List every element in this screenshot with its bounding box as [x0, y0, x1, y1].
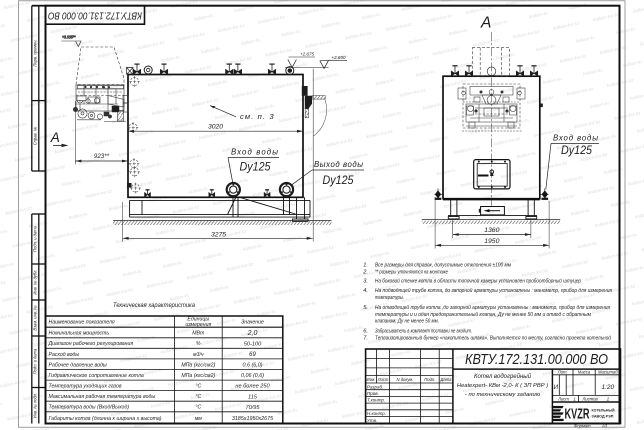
- svg-text:Перв. примен.: Перв. примен.: [33, 39, 38, 66]
- svg-text:Лист: Лист: [377, 377, 389, 382]
- svg-text:1950: 1950: [484, 238, 499, 245]
- svg-text:0,06 (0,6): 0,06 (0,6): [241, 373, 264, 379]
- svg-text:70/95: 70/95: [246, 405, 261, 411]
- svg-text:6.: 6.: [363, 329, 368, 335]
- svg-text:Выход воды: Выход воды: [314, 160, 363, 169]
- svg-text:Подп.: Подп.: [424, 377, 435, 382]
- svg-text:1360: 1360: [484, 227, 499, 234]
- svg-text:Dy125: Dy125: [240, 162, 272, 174]
- svg-text:- по техническому заданию: - по техническому заданию: [465, 392, 541, 398]
- svg-text:+2.600: +2.600: [332, 55, 347, 60]
- svg-text:Пров.: Пров.: [367, 391, 379, 396]
- svg-text:Лит.: Лит.: [557, 369, 568, 374]
- svg-text:1: 1: [573, 396, 575, 401]
- svg-text:Забрасыватель в комплект поста: Забрасыватель в комплект поставки не вхо…: [375, 329, 472, 335]
- svg-text:клапаном, Ду не менее 50 мм.: клапаном, Ду не менее 50 мм.: [375, 319, 439, 325]
- svg-text:КВТУ.172.131.00.000 ВО: КВТУ.172.131.00.000 ВО: [465, 351, 608, 368]
- svg-text:измерения: измерения: [185, 322, 211, 328]
- svg-text:Взам. инв. №: Взам. инв. №: [33, 305, 38, 331]
- svg-text:м3/ч: м3/ч: [193, 352, 204, 358]
- svg-text:5.: 5.: [363, 305, 368, 311]
- svg-text:Утв.: Утв.: [367, 418, 377, 423]
- svg-text:Dy125: Dy125: [561, 145, 593, 157]
- svg-text:температуры и и один предохран: температуры и и один предохранительный к…: [375, 311, 591, 318]
- svg-text:Техническая характеристика: Техническая характеристика: [113, 302, 196, 309]
- svg-text:А: А: [50, 130, 60, 145]
- svg-text:МПа (кгс/см2): МПа (кгс/см2): [181, 373, 215, 379]
- svg-text:И: И: [554, 384, 559, 391]
- svg-text:%: %: [196, 341, 201, 347]
- svg-text:температуры.: температуры.: [375, 295, 404, 301]
- svg-text:50-100: 50-100: [244, 341, 262, 347]
- svg-text:Инв. № подл.: Инв. № подл.: [33, 393, 38, 418]
- svg-text:°С: °С: [195, 405, 201, 411]
- svg-text:Разраб.: Разраб.: [367, 384, 383, 389]
- svg-text:923**: 923**: [94, 153, 110, 160]
- svg-text:не более 250: не более 250: [235, 384, 270, 390]
- svg-text:4.: 4.: [363, 288, 368, 294]
- svg-text:Максимальная рабочая температу: Максимальная рабочая температура воды: [49, 394, 156, 400]
- svg-text:2.: 2.: [362, 269, 368, 275]
- svg-text:А3: А3: [601, 424, 608, 429]
- svg-text:Масса: Масса: [578, 369, 591, 374]
- svg-text:+2.675: +2.675: [300, 52, 315, 57]
- svg-text:Инв. № дубл.: Инв. № дубл.: [33, 269, 38, 294]
- svg-text:KVZR: KVZR: [565, 407, 590, 423]
- svg-text:Изм.: Изм.: [367, 377, 376, 382]
- svg-text:°С: °С: [195, 394, 201, 400]
- svg-text:3020: 3020: [208, 124, 223, 131]
- svg-text:°С: °С: [195, 384, 201, 390]
- svg-text:мм: мм: [195, 416, 203, 422]
- svg-text:N докум.: N докум.: [397, 377, 414, 382]
- svg-text:Наименование показателя: Наименование показателя: [49, 320, 115, 326]
- svg-text:Значение: Значение: [241, 320, 264, 326]
- svg-text:Heatexpert- КВм -2,0- К ( ЗП Р: Heatexpert- КВм -2,0- К ( ЗП РВР ): [457, 383, 548, 389]
- svg-text:Теплоизолированный бункер «нак: Теплоизолированный бункер «накопитель шл…: [375, 335, 612, 342]
- svg-text:Диапазон рабочего регулировани: Диапазон рабочего регулирования: [48, 341, 134, 347]
- svg-text:Вход воды: Вход воды: [553, 134, 598, 143]
- svg-text:МВт: МВт: [192, 331, 205, 337]
- svg-text:см. п. 3: см. п. 3: [240, 112, 275, 121]
- svg-text:Т.контр.: Т.контр.: [367, 398, 385, 403]
- svg-text:69: 69: [249, 352, 256, 358]
- svg-text:** размеры уточняются на монта: ** размеры уточняются на монтаже: [375, 269, 448, 275]
- svg-text:3.: 3.: [363, 279, 368, 285]
- svg-text:На отводящей трубе котла ,до з: На отводящей трубе котла ,до запорной ар…: [375, 304, 610, 311]
- svg-text:Все размеры для справок, допус: Все размеры для справок, допустимые откл…: [375, 262, 511, 268]
- svg-text:Масштаб: Масштаб: [598, 369, 618, 374]
- svg-text:3185х1950х2675: 3185х1950х2675: [232, 416, 274, 422]
- svg-text:Гидравлическое сопротивление к: Гидравлическое сопротивление котла: [49, 373, 144, 379]
- svg-text:Температура уходящих газов: Температура уходящих газов: [49, 384, 122, 390]
- svg-text:Справ. №: Справ. №: [33, 126, 38, 145]
- svg-text:Н.контр.: Н.контр.: [367, 411, 386, 416]
- svg-text:Дата: Дата: [439, 377, 452, 382]
- svg-text:Лист: Лист: [557, 396, 569, 401]
- svg-text:Формат: Формат: [574, 424, 591, 429]
- svg-text:3275: 3275: [211, 232, 226, 239]
- svg-text:Рабочее давление воды: Рабочее давление воды: [49, 362, 107, 368]
- svg-text:Dy125: Dy125: [323, 175, 355, 187]
- svg-text:Расход воды: Расход воды: [49, 352, 80, 358]
- svg-text:115: 115: [248, 394, 258, 400]
- svg-text:На боковой стенке котла в обла: На боковой стенке котла в области топочн…: [375, 278, 581, 285]
- svg-text:2,0: 2,0: [247, 330, 258, 337]
- svg-text:МПа (кгс/см2): МПа (кгс/см2): [181, 362, 215, 368]
- svg-text:Температура воды (Вход/Выход): Температура воды (Вход/Выход): [49, 405, 130, 411]
- svg-text:+3.005**: +3.005**: [62, 34, 76, 39]
- svg-text:Листов: Листов: [581, 396, 598, 401]
- svg-text:7.: 7.: [363, 336, 368, 342]
- svg-text:КВТУ.172.131.00.000 ВО: КВТУ.172.131.00.000 ВО: [48, 10, 142, 21]
- svg-text:1.: 1.: [363, 262, 368, 268]
- svg-text:А: А: [480, 15, 491, 32]
- svg-text:0,6 (6,0): 0,6 (6,0): [242, 362, 262, 368]
- svg-text:ЗАВОД РЭП: ЗАВОД РЭП: [592, 414, 614, 418]
- svg-text:Номинальная мощность: Номинальная мощность: [49, 331, 110, 337]
- svg-text:1:20: 1:20: [601, 384, 614, 391]
- svg-text:Подп. и дата: Подп. и дата: [33, 225, 38, 251]
- svg-text:Подп. и дата: Подп. и дата: [33, 348, 38, 374]
- svg-text:Габариты котла (длинна х шир: Габариты котла (длинна х ширина х высота…: [49, 416, 162, 422]
- svg-text:Котел водогрейный: Котел водогрейный: [474, 373, 532, 380]
- svg-text:КОТЕЛЬНЫЙ: КОТЕЛЬНЫЙ: [592, 408, 615, 412]
- svg-text:На подводящей трубе котла, до: На подводящей трубе котла, до запорной а…: [375, 287, 612, 294]
